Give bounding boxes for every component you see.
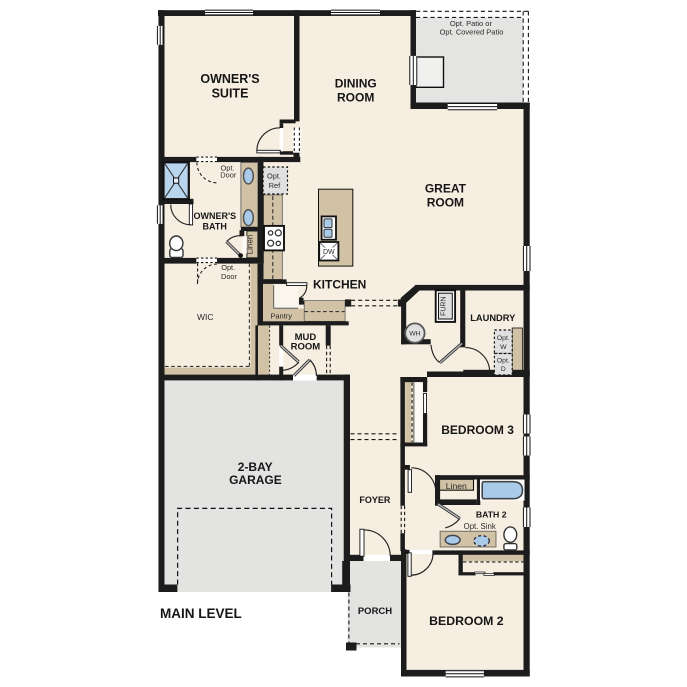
svg-text:Pantry: Pantry [270, 311, 292, 320]
svg-text:Linen: Linen [446, 481, 467, 491]
svg-text:Door: Door [220, 170, 237, 179]
svg-text:WH: WH [409, 331, 420, 338]
svg-text:KITCHEN: KITCHEN [313, 277, 366, 291]
svg-text:Ref: Ref [269, 181, 281, 190]
svg-text:GARAGE: GARAGE [229, 473, 282, 487]
svg-text:Opt. Covered Patio: Opt. Covered Patio [440, 28, 504, 37]
svg-text:MAIN LEVEL: MAIN LEVEL [160, 606, 242, 621]
svg-text:Linen: Linen [246, 235, 255, 255]
svg-text:BEDROOM 3: BEDROOM 3 [441, 423, 514, 437]
svg-text:WIC: WIC [197, 312, 214, 322]
svg-text:PORCH: PORCH [358, 606, 392, 617]
svg-text:D: D [501, 366, 506, 373]
svg-text:LAUNDRY: LAUNDRY [470, 313, 516, 323]
svg-text:Opt.: Opt. [267, 172, 281, 181]
svg-text:2-BAY: 2-BAY [238, 460, 273, 474]
svg-text:GREAT: GREAT [425, 182, 467, 196]
svg-text:BEDROOM 2: BEDROOM 2 [429, 614, 504, 628]
svg-text:Opt. Sink: Opt. Sink [464, 522, 496, 531]
svg-text:BATH 2: BATH 2 [476, 510, 507, 520]
svg-text:ROOM: ROOM [337, 91, 374, 105]
svg-text:Opt.: Opt. [497, 335, 510, 342]
svg-text:OWNER'S: OWNER'S [193, 211, 236, 221]
svg-text:SUITE: SUITE [212, 86, 249, 100]
svg-text:FOYER: FOYER [359, 495, 391, 505]
svg-text:DW: DW [323, 249, 335, 256]
svg-text:OWNER'S: OWNER'S [200, 72, 259, 86]
svg-text:FURN: FURN [441, 296, 448, 315]
svg-text:W: W [500, 344, 507, 351]
svg-text:Opt.: Opt. [497, 357, 510, 364]
svg-text:Door: Door [221, 272, 238, 281]
svg-text:Opt. Patio or: Opt. Patio or [450, 19, 493, 28]
svg-text:ROOM: ROOM [427, 196, 464, 210]
svg-text:ROOM: ROOM [291, 342, 321, 353]
svg-text:DINING: DINING [335, 76, 377, 90]
svg-text:BATH: BATH [203, 221, 227, 231]
